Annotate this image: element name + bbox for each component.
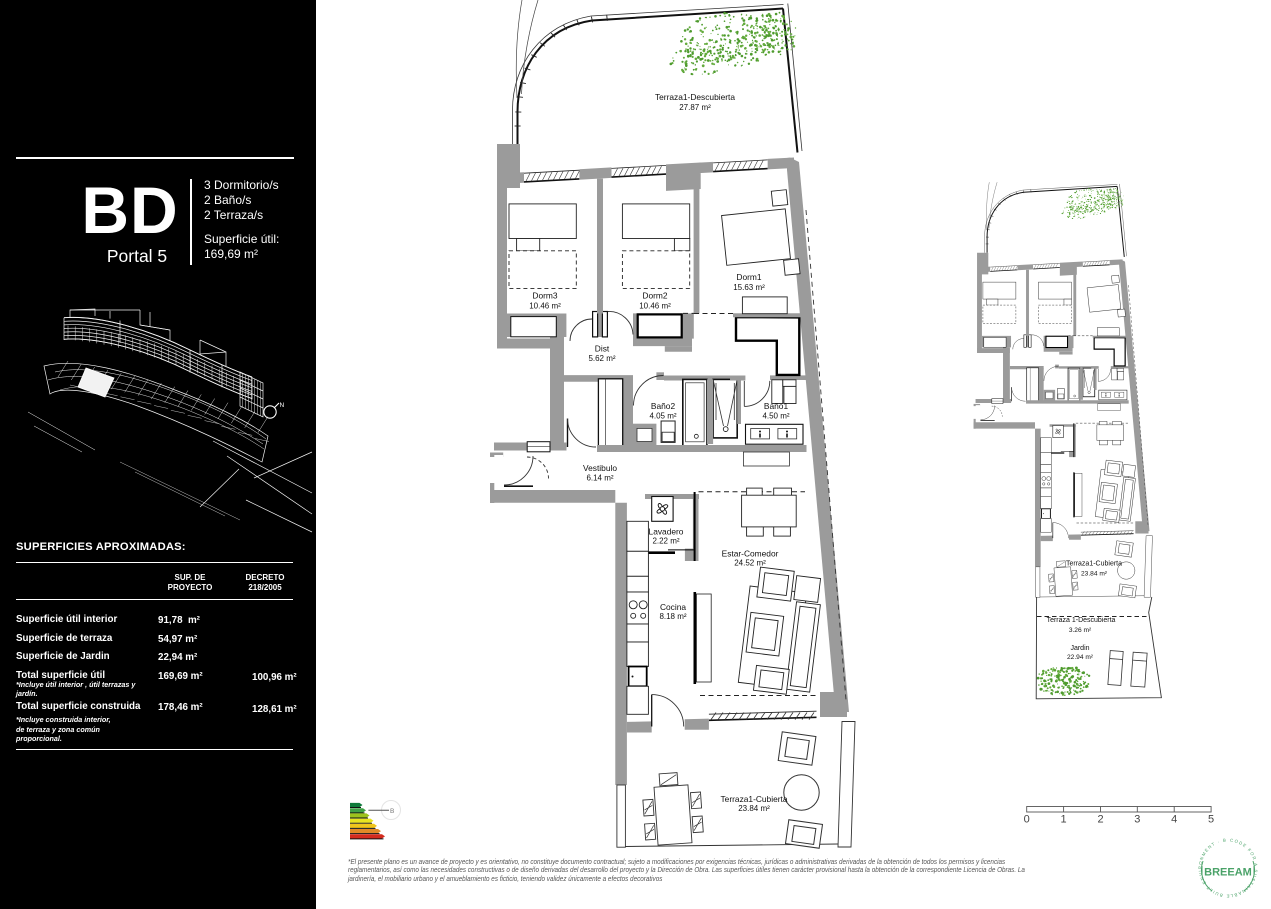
svg-text:24.52 m²: 24.52 m² (734, 558, 766, 567)
svg-text:23.84 m²: 23.84 m² (738, 804, 770, 813)
svg-text:Terraza1-Cubierta: Terraza1-Cubierta (720, 794, 787, 804)
svg-text:Dorm3: Dorm3 (532, 291, 557, 301)
svg-text:Cocina: Cocina (660, 602, 686, 612)
svg-text:4: 4 (1171, 814, 1177, 826)
svg-text:Dist: Dist (595, 344, 610, 354)
svg-text:2: 2 (1097, 814, 1103, 826)
svg-text:Terraza1-Descubierta: Terraza1-Descubierta (655, 92, 735, 102)
svg-text:22.94 m²: 22.94 m² (1067, 654, 1094, 661)
svg-text:Lavadero: Lavadero (649, 527, 684, 537)
svg-text:6.14 m²: 6.14 m² (586, 474, 613, 483)
svg-text:2.22 m²: 2.22 m² (652, 537, 679, 546)
svg-text:23.84 m²: 23.84 m² (1081, 571, 1108, 578)
svg-text:10.46 m²: 10.46 m² (639, 302, 671, 311)
svg-text:Dorm2: Dorm2 (642, 291, 667, 301)
svg-text:Terraza1-Cubierta: Terraza1-Cubierta (1066, 561, 1122, 568)
svg-text:Dorm1: Dorm1 (736, 272, 761, 282)
svg-text:10.46 m²: 10.46 m² (529, 302, 561, 311)
svg-text:4.50 m²: 4.50 m² (762, 412, 789, 421)
svg-text:27.87 m²: 27.87 m² (679, 103, 711, 112)
svg-text:5: 5 (1208, 814, 1214, 826)
svg-text:3.26 m²: 3.26 m² (1069, 627, 1092, 634)
svg-text:Baño1: Baño1 (764, 401, 789, 411)
svg-text:Baño2: Baño2 (651, 401, 676, 411)
svg-text:3: 3 (1134, 814, 1140, 826)
svg-text:Jardin: Jardin (1070, 645, 1089, 652)
svg-text:5.62 m²: 5.62 m² (588, 354, 615, 363)
svg-text:B: B (390, 808, 394, 815)
svg-text:0: 0 (1024, 814, 1030, 826)
svg-text:Estar-Comedor: Estar-Comedor (722, 548, 779, 558)
svg-text:Terraza 1-Descubierta: Terraza 1-Descubierta (1047, 617, 1116, 624)
svg-text:15.63 m²: 15.63 m² (733, 283, 765, 292)
svg-text:8.18 m²: 8.18 m² (659, 612, 686, 621)
svg-text:1: 1 (1061, 814, 1067, 826)
svg-text:BREEAM: BREEAM (1204, 867, 1252, 879)
svg-text:4.05 m²: 4.05 m² (649, 412, 676, 421)
svg-text:Vestibulo: Vestibulo (583, 463, 617, 473)
